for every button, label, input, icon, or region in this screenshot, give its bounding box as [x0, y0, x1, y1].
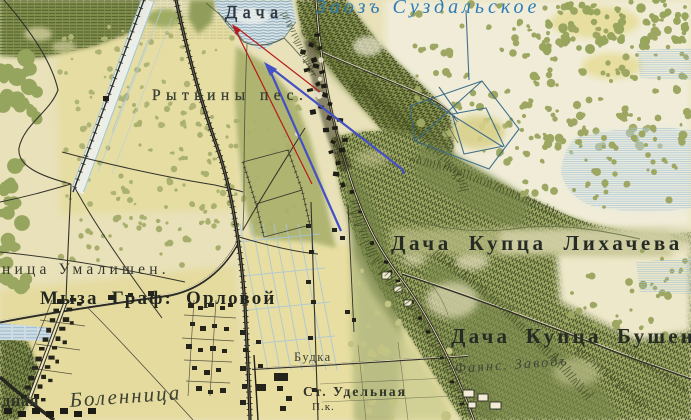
svg-text:Дача: Дача — [225, 2, 284, 22]
svg-text:П.к.: П.к. — [312, 401, 335, 413]
svg-text:Будка: Будка — [294, 350, 332, 364]
svg-text:Дача Купца Бушен: Дача Купца Бушен — [451, 324, 691, 348]
svg-text:дная: дная — [2, 391, 39, 410]
svg-text:Ст. Удельная: Ст. Удельная — [303, 384, 407, 399]
svg-text:Заозъ Суздальское: Заозъ Суздальское — [316, 0, 540, 18]
svg-text:Дача Купца Лихачева: Дача Купца Лихачева — [391, 231, 683, 255]
svg-text:ница Умалишен.: ница Умалишен. — [2, 261, 170, 278]
svg-text:Мыза Граф: Орловой: Мыза Граф: Орловой — [40, 288, 277, 309]
svg-text:Рытвины пес.: Рытвины пес. — [152, 87, 308, 104]
